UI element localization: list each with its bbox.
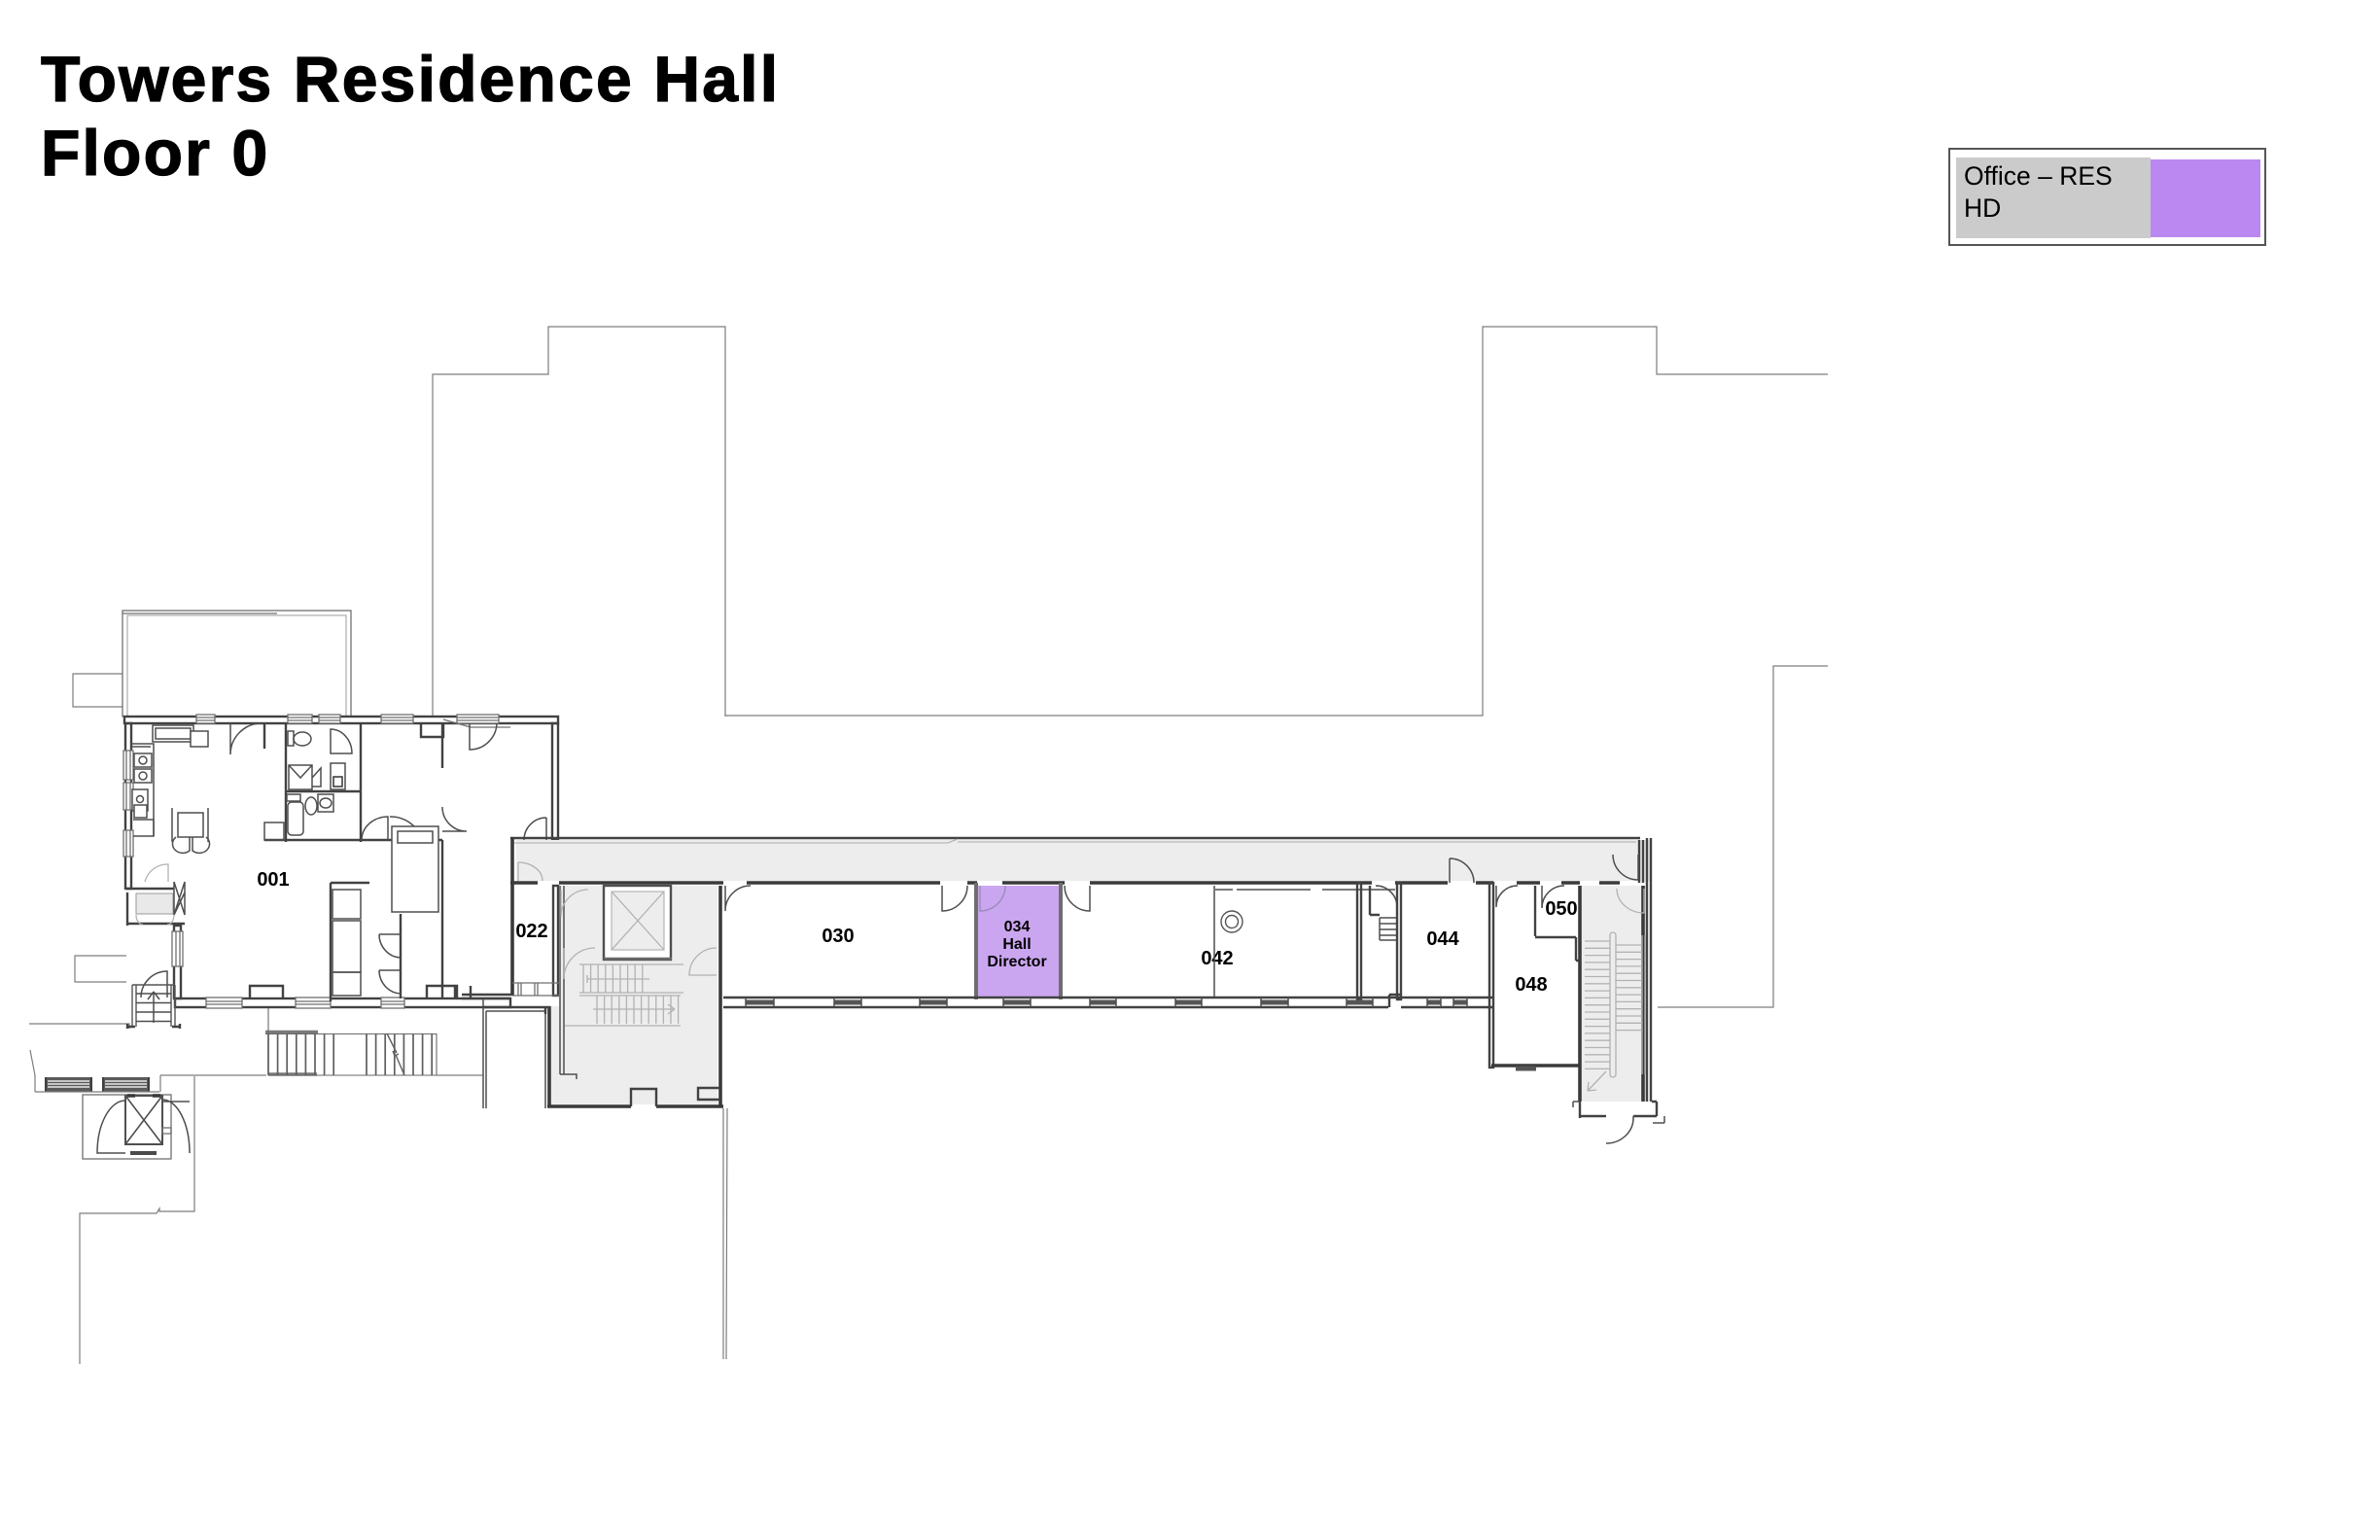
svg-text:050: 050: [1545, 898, 1577, 920]
svg-text:030: 030: [822, 926, 854, 947]
svg-text:034: 034: [1004, 919, 1031, 935]
svg-text:044: 044: [1426, 928, 1459, 950]
svg-text:042: 042: [1201, 948, 1233, 969]
svg-text:Director: Director: [987, 954, 1046, 970]
svg-text:001: 001: [257, 869, 289, 891]
svg-text:Hall: Hall: [1002, 936, 1031, 953]
svg-text:048: 048: [1515, 974, 1547, 996]
svg-text:022: 022: [515, 921, 547, 942]
